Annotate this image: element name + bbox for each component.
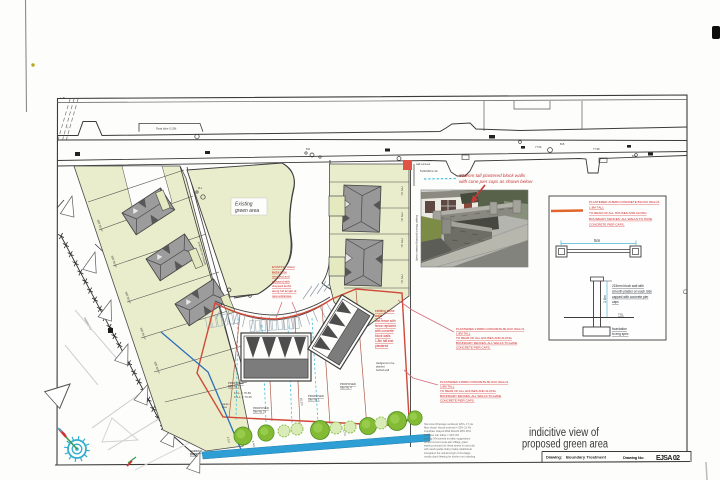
svg-text:CONCRETE PIER CAPS.: CONCRETE PIER CAPS.	[589, 222, 625, 226]
svg-text:Liquidraw relayed Wall Retrofi: Liquidraw relayed Wall Retrofit 28% 46%	[424, 429, 472, 433]
svg-text:775 m²: 775 m²	[400, 212, 404, 221]
svg-text:indicitive view of: indicitive view of	[529, 427, 600, 439]
svg-text:Site No 4: Site No 4	[340, 386, 352, 390]
svg-text:Drawing:: Drawing:	[546, 455, 562, 460]
svg-text:Max shown House external =: Max shown House external = 25% 21 Pa	[424, 426, 471, 430]
svg-text:dubidig 9-M pierted ind alks: dubidig 9-M pierted ind alks suggestions	[424, 436, 471, 440]
svg-text:L+B: L+B	[60, 96, 65, 100]
svg-text:intregtians the rioinal lortgi: intregtians the rioinal lortgih of cha f…	[424, 451, 471, 455]
svg-text:Drawing No:: Drawing No:	[623, 455, 644, 460]
svg-text:CONCRETE PIER CAPS.: CONCRETE PIER CAPS.	[456, 345, 491, 349]
svg-text:BOUNDARY FENCES. ALL WALLS TO: BOUNDARY FENCES. ALL WALLS TO HAVE	[456, 341, 517, 345]
svg-text:fence replaced: fence replaced	[375, 324, 396, 328]
svg-text:TO REAR OF ALL HOUSES AND ALON: TO REAR OF ALL HOUSES AND ALONG	[589, 211, 647, 215]
svg-text:green area: green area	[235, 208, 259, 214]
svg-text:BANK: BANK	[190, 453, 198, 457]
svg-text:PLASTERED 215MM CONCRETE BLOCK: PLASTERED 215MM CONCRETE BLOCK WALLS	[589, 200, 659, 204]
svg-text:dropped kerbs: dropped kerbs	[272, 284, 292, 288]
svg-text:PLASTERED 215MM CONCRETE BLOCK: PLASTERED 215MM CONCRETE BLOCK WALLS	[440, 380, 508, 384]
svg-text:EJSA 02: EJSA 02	[656, 455, 680, 462]
svg-text:Existing: Existing	[235, 202, 253, 208]
svg-text:CONCRETE PIER CAPS.: CONCRETE PIER CAPS.	[440, 398, 475, 402]
svg-text:block walls: block walls	[375, 334, 391, 338]
svg-text:with concrete: with concrete	[375, 329, 394, 333]
svg-text:Adaptive sub follow =: Adaptive sub follow = 32% 9%	[424, 433, 460, 437]
svg-text:proposed green area: proposed green area	[522, 439, 608, 451]
svg-text:kerbs to be: kerbs to be	[272, 270, 287, 274]
svg-text:1.8M TALL: 1.8M TALL	[440, 385, 455, 389]
svg-text:with cone pier caps as shown b: with cone pier caps as shown below	[459, 179, 533, 184]
svg-text:removed and: removed and	[272, 275, 290, 279]
svg-text:Writed convert.ional aari offi: Writed convert.ional aari offilagt, glaw…	[424, 440, 468, 444]
svg-text:starting tomcard cill rleval a: starting tomcard cill rleval airtres in …	[424, 444, 475, 448]
svg-text:area: area	[222, 406, 227, 409]
svg-text:B-B: B-B	[306, 148, 310, 151]
svg-text:TO REAR OF ALL HOUSES AND ALON: TO REAR OF ALL HOUSES AND ALONG	[456, 336, 513, 340]
svg-text:Road dyke 0.12M: Road dyke 0.12M	[156, 127, 176, 131]
svg-text:Site No 1: Site No 1	[308, 398, 320, 402]
svg-text:to eng spec: to eng spec	[612, 332, 629, 336]
svg-text:5m: 5m	[594, 238, 601, 243]
svg-text:behind wall: behind wall	[376, 368, 389, 372]
svg-text:775 m²: 775 m²	[400, 186, 404, 195]
svg-text:Capel Street (existing estate: Capel Street (existing estate road)	[415, 215, 419, 261]
svg-text:1.8M TALL: 1.8M TALL	[589, 206, 604, 210]
svg-text:B-B: B-B	[560, 142, 565, 146]
svg-text:cimida clanb fleeting he alrzh: cimida clanb fleeting he alrzhm mm oland…	[424, 454, 476, 458]
svg-text:PLASTERED 215MM CONCRETE BLOCK: PLASTERED 215MM CONCRETE BLOCK WALLS	[456, 327, 524, 331]
svg-text:wall removed: wall removed	[416, 163, 431, 166]
svg-text:800mm tall plastered block wal: 800mm tall plastered block walls	[459, 173, 526, 178]
svg-text:775 m²: 775 m²	[400, 238, 404, 247]
svg-text:1.8m tall and: 1.8m tall and	[375, 339, 393, 343]
svg-text:Site No 3: Site No 3	[253, 410, 265, 414]
svg-text:and fence with: and fence with	[375, 319, 396, 323]
svg-text:replaced with: replaced with	[272, 279, 290, 283]
svg-text:BOUNDARY FENCES. ALL WALLS TO: BOUNDARY FENCES. ALL WALLS TO HAVE	[440, 394, 501, 398]
svg-text:C: C	[683, 290, 688, 296]
svg-text:M-1: M-1	[198, 187, 203, 190]
svg-text:77.06: 77.06	[535, 145, 542, 149]
svg-text:Site Area (Drainage surfaces): Site Area (Drainage surfaces) 225/+ 17 H…	[424, 422, 474, 426]
svg-text:215mm block wall with: 215mm block wall with	[612, 284, 644, 288]
svg-text:Boundary Treatment: Boundary Treatment	[566, 455, 607, 460]
svg-text:77.98: 77.98	[593, 147, 600, 151]
svg-text:smooth plaster on each side: smooth plaster on each side	[612, 289, 652, 293]
svg-text:B-E: B-E	[632, 154, 637, 158]
svg-text:TO REAR OF ALL HOUSES AND ALON: TO REAR OF ALL HOUSES AND ALONG	[440, 389, 497, 393]
svg-text:walls: walls	[375, 314, 382, 318]
svg-text:EXISTING wheel: EXISTING wheel	[272, 265, 295, 269]
svg-text:775 m²: 775 m²	[400, 274, 404, 283]
svg-text:planted: planted	[376, 365, 385, 369]
svg-text:1.8M TALL: 1.8M TALL	[456, 332, 471, 336]
svg-text:TGL: TGL	[618, 313, 624, 317]
svg-text:foundation: foundation	[612, 327, 627, 331]
svg-text:F.G.L. = 76.45: F.G.L. = 76.45	[234, 395, 252, 399]
svg-text:5x20x930mm bk: 5x20x930mm bk	[420, 170, 438, 173]
svg-text:existing stone: existing stone	[375, 309, 395, 313]
svg-text:caps: caps	[612, 300, 619, 304]
svg-text:Site No 2: Site No 2	[228, 385, 240, 389]
svg-text:1.8m: 1.8m	[603, 295, 607, 303]
svg-text:plastered: plastered	[375, 344, 388, 348]
svg-text:along full length of: along full length of	[272, 289, 297, 293]
svg-text:Hedgerow to be: Hedgerow to be	[376, 361, 395, 365]
svg-text:capped with concrete pier: capped with concrete pier	[612, 295, 649, 299]
svg-text:new entrances: new entrances	[272, 294, 292, 298]
svg-text:with saod igrafas ibdrig rivak: with saod igrafas ibdrig rivakly abaliti…	[424, 447, 472, 451]
svg-text:BOUNDARY FENCES. ALL WALLS TO: BOUNDARY FENCES. ALL WALLS TO HAVE	[589, 217, 652, 221]
